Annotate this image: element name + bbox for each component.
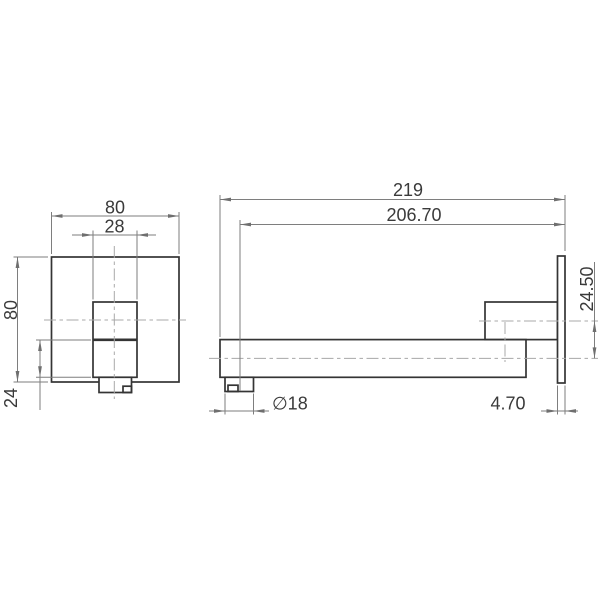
dim-label-lower-section: 24 — [1, 388, 21, 408]
arrow-left — [220, 198, 231, 202]
dim-label-overall-projection: 219 — [393, 180, 423, 200]
arrow-right — [168, 214, 179, 218]
dim-label-handle-width: 28 — [104, 217, 124, 237]
drawing-svg: 80 28 80 24 — [0, 0, 600, 600]
side-view: 219 206.70 24.50 ∅18 — [209, 180, 598, 415]
side-wall-plate — [558, 256, 566, 383]
arrow-left — [214, 409, 225, 413]
dim-side-plate-thickness: 4.70 — [490, 386, 578, 415]
arrow-right — [554, 223, 565, 227]
dim-front-plate-height: 80 — [1, 257, 48, 382]
dim-label-plate-height: 80 — [1, 300, 21, 320]
front-view: 80 28 80 24 — [1, 198, 186, 411]
arrow-top — [38, 340, 42, 351]
dim-label-centreline-offset: 24.50 — [577, 266, 597, 311]
dim-label-plate-thickness: 4.70 — [490, 394, 525, 414]
dim-front-lower-section: 24 — [1, 340, 91, 410]
arrow-left — [82, 233, 93, 237]
arrow-left — [547, 409, 558, 413]
arrow-top — [16, 257, 20, 268]
arrow-bottom — [38, 366, 42, 377]
dim-label-plate-width: 80 — [105, 198, 125, 218]
dim-side-centreline-offset: 24.50 — [577, 262, 597, 358]
arrow-right — [137, 233, 148, 237]
arrow-left — [52, 214, 63, 218]
arrow-top — [593, 321, 597, 332]
technical-drawing-canvas: 80 28 80 24 — [0, 0, 600, 600]
arrow-bottom — [593, 347, 597, 358]
dim-side-overall-projection: 219 — [220, 180, 565, 337]
arrow-right — [554, 198, 565, 202]
dim-side-spout-diameter: ∅18 — [209, 394, 308, 415]
front-spout-outlet — [99, 377, 132, 392]
arrow-right — [565, 409, 576, 413]
arrow-bottom — [16, 371, 20, 382]
dim-label-outlet-projection: 206.70 — [386, 205, 441, 225]
arrow-right — [254, 409, 265, 413]
dim-side-outlet-projection: 206.70 — [240, 205, 565, 391]
arrow-left — [240, 223, 251, 227]
dim-label-spout-diameter: ∅18 — [272, 394, 308, 414]
